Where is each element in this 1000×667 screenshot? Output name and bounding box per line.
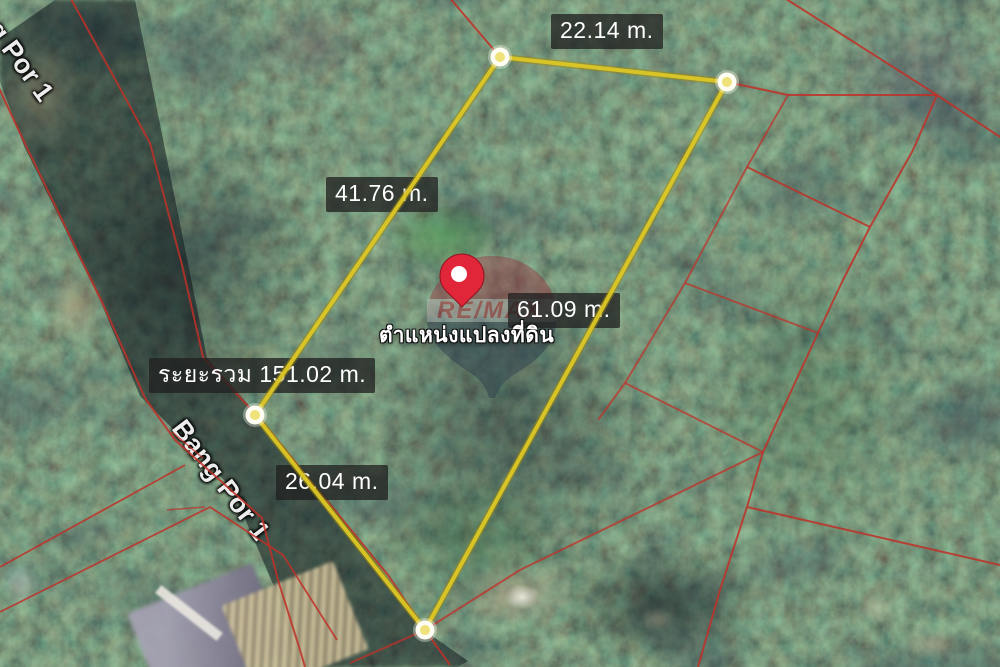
plot-vertices (243, 45, 739, 642)
plot-vertex-marker (495, 52, 505, 62)
plot-vertex-marker (420, 625, 430, 635)
plot-vertex-marker (722, 77, 732, 87)
location-pin-icon (440, 254, 484, 307)
plot-vertex-marker (250, 410, 260, 420)
satellite-map: RE/MAX 22.14 m. 41.76 m. 61.09 m. ระยะรว… (0, 0, 1000, 667)
plot-boundary-outline-shadow (255, 57, 727, 630)
plot-boundary-outline (255, 57, 727, 630)
plot-boundary-overlay (0, 0, 1000, 667)
